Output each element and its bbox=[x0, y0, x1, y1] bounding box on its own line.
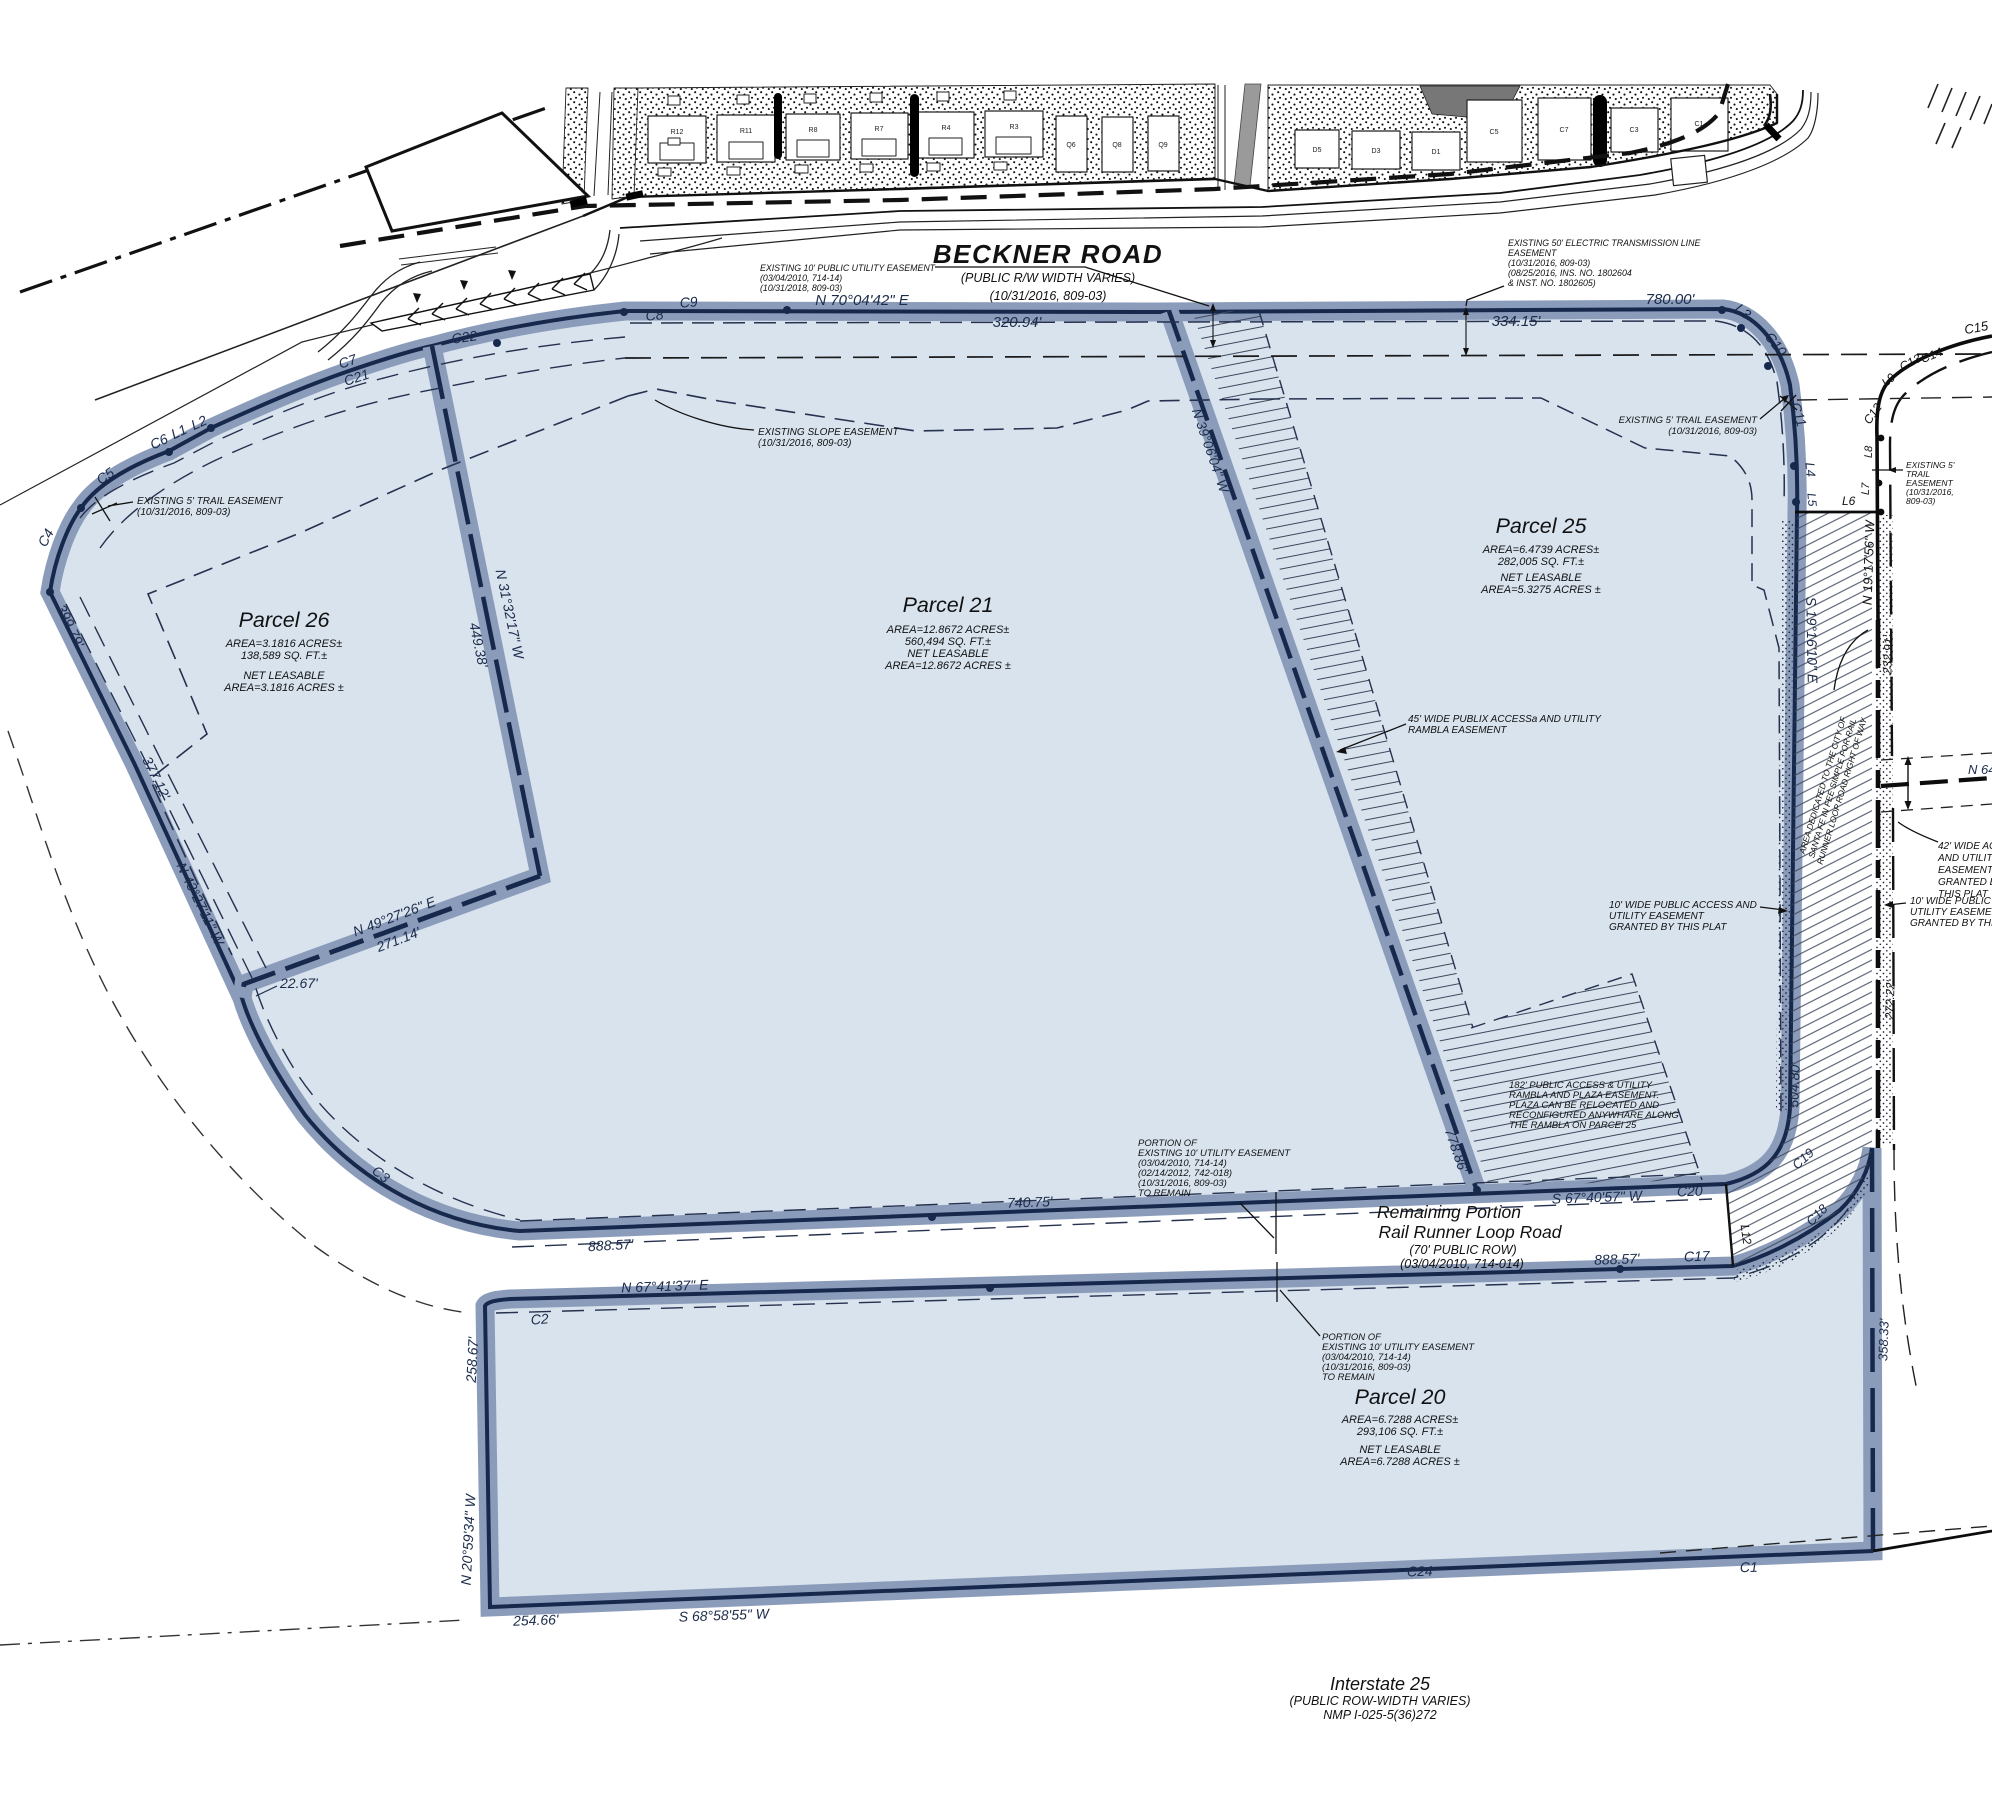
svg-text:C8: C8 bbox=[645, 306, 665, 324]
svg-text:C24: C24 bbox=[1407, 1563, 1433, 1580]
svg-text:C20: C20 bbox=[1677, 1183, 1703, 1200]
svg-text:(08/25/2016, INS. NO. 1802604: (08/25/2016, INS. NO. 1802604 bbox=[1508, 268, 1632, 278]
svg-text:L8: L8 bbox=[1863, 445, 1875, 459]
svg-text:S 68°58'55" W: S 68°58'55" W bbox=[678, 1605, 771, 1624]
svg-text:N 19°17'56" W: N 19°17'56" W bbox=[1860, 519, 1878, 606]
svg-text:AREA=6.7288 ACRES ±: AREA=6.7288 ACRES ± bbox=[1339, 1456, 1460, 1468]
svg-text:42' WIDE ACCESS: 42' WIDE ACCESS bbox=[1938, 841, 1992, 852]
svg-text:358.33': 358.33' bbox=[1875, 1318, 1891, 1361]
svg-text:EXISTING 5' TRAIL EASEMENT: EXISTING 5' TRAIL EASEMENT bbox=[1619, 415, 1759, 426]
svg-text:& INST. NO. 1802605): & INST. NO. 1802605) bbox=[1508, 278, 1596, 288]
svg-text:809-03): 809-03) bbox=[1906, 496, 1935, 506]
svg-text:Q9: Q9 bbox=[1158, 142, 1167, 149]
svg-text:C1: C1 bbox=[1740, 1559, 1758, 1576]
svg-text:RAMBLA EASEMENT: RAMBLA EASEMENT bbox=[1408, 725, 1507, 736]
svg-text:D1: D1 bbox=[1432, 149, 1441, 156]
svg-text:EXISTING 10' PUBLIC UTILITY EA: EXISTING 10' PUBLIC UTILITY EASEMENT bbox=[760, 263, 936, 273]
svg-text:EXISTING 5' TRAIL EASEMENT: EXISTING 5' TRAIL EASEMENT bbox=[137, 496, 284, 507]
svg-text:Parcel 21: Parcel 21 bbox=[903, 593, 994, 617]
svg-text:Remaining Portion: Remaining Portion bbox=[1377, 1202, 1521, 1222]
svg-text:N 67°41'37" E: N 67°41'37" E bbox=[621, 1276, 709, 1295]
svg-text:BECKNER ROAD: BECKNER ROAD bbox=[933, 239, 1163, 269]
svg-text:GRANTED BY THIS PLAT: GRANTED BY THIS PLAT bbox=[1910, 918, 1992, 929]
svg-text:AREA=6.4739 ACRES±: AREA=6.4739 ACRES± bbox=[1482, 544, 1600, 556]
svg-text:Interstate 25: Interstate 25 bbox=[1330, 1674, 1431, 1694]
svg-text:AREA=12.8672 ACRES±: AREA=12.8672 ACRES± bbox=[886, 624, 1010, 636]
svg-text:(10/31/2016, 809-03): (10/31/2016, 809-03) bbox=[990, 289, 1107, 303]
svg-text:UTILITY EASEMENT: UTILITY EASEMENT bbox=[1910, 907, 1992, 918]
svg-text:S 19°16'10" E: S 19°16'10" E bbox=[1803, 597, 1821, 684]
svg-text:293,106 SQ. FT.±: 293,106 SQ. FT.± bbox=[1356, 1426, 1443, 1438]
svg-text:L12: L12 bbox=[1738, 1224, 1755, 1246]
svg-text:22.67': 22.67' bbox=[279, 975, 319, 991]
svg-text:(PUBLIC R/W WIDTH VARIES): (PUBLIC R/W WIDTH VARIES) bbox=[961, 271, 1135, 285]
svg-text:(PUBLIC ROW-WIDTH VARIES): (PUBLIC ROW-WIDTH VARIES) bbox=[1289, 1694, 1470, 1708]
svg-text:R4: R4 bbox=[942, 125, 951, 132]
svg-text:C9: C9 bbox=[679, 293, 698, 310]
svg-text:L4: L4 bbox=[1802, 462, 1818, 478]
svg-text:D3: D3 bbox=[1372, 148, 1381, 155]
svg-text:THE RAMBLA ON PARCEl 25: THE RAMBLA ON PARCEl 25 bbox=[1509, 1120, 1637, 1131]
svg-text:NMP I-025-5(36)272: NMP I-025-5(36)272 bbox=[1323, 1708, 1437, 1722]
svg-text:45' WIDE PUBLIX ACCESSa AND UT: 45' WIDE PUBLIX ACCESSa AND UTILITY bbox=[1408, 714, 1602, 725]
svg-text:320.94': 320.94' bbox=[993, 314, 1043, 331]
svg-text:560,494 SQ. FT.±: 560,494 SQ. FT.± bbox=[905, 636, 991, 648]
svg-text:Q8: Q8 bbox=[1112, 142, 1121, 149]
svg-text:D5: D5 bbox=[1313, 147, 1322, 154]
svg-text:EXISTING 50' ELECTRIC TRANSMIS: EXISTING 50' ELECTRIC TRANSMISSION LINE bbox=[1508, 238, 1700, 248]
svg-text:R12: R12 bbox=[671, 129, 684, 136]
svg-text:GRANTED BY: GRANTED BY bbox=[1938, 877, 1992, 888]
svg-text:C7: C7 bbox=[1560, 127, 1569, 134]
svg-text:272.22': 272.22' bbox=[1882, 979, 1897, 1020]
svg-text:EXISTING SLOPE EASEMENT: EXISTING SLOPE EASEMENT bbox=[758, 427, 899, 438]
svg-text:Q6: Q6 bbox=[1066, 142, 1075, 149]
svg-text:L5: L5 bbox=[1804, 492, 1819, 507]
svg-text:NET LEASABLE: NET LEASABLE bbox=[1359, 1444, 1441, 1456]
svg-text:NET LEASABLE: NET LEASABLE bbox=[243, 670, 325, 682]
svg-text:Parcel 26: Parcel 26 bbox=[239, 608, 330, 632]
svg-text:R8: R8 bbox=[809, 127, 818, 134]
svg-text:AREA=6.7288 ACRES±: AREA=6.7288 ACRES± bbox=[1341, 1414, 1459, 1426]
svg-text:R11: R11 bbox=[740, 128, 752, 135]
svg-text:740.75': 740.75' bbox=[1007, 1193, 1054, 1211]
svg-text:EASEMENT: EASEMENT bbox=[1938, 865, 1992, 876]
svg-text:L7: L7 bbox=[1860, 482, 1872, 496]
svg-text:C17: C17 bbox=[1684, 1248, 1711, 1265]
svg-text:NET LEASABLE: NET LEASABLE bbox=[1500, 572, 1582, 584]
svg-text:N 64: N 64 bbox=[1968, 762, 1992, 777]
svg-text:TO REMAIN: TO REMAIN bbox=[1322, 1372, 1375, 1383]
svg-text:R7: R7 bbox=[875, 126, 884, 133]
svg-text:UTILITY EASEMENT: UTILITY EASEMENT bbox=[1609, 911, 1705, 922]
svg-text:AREA=5.3275 ACRES ±: AREA=5.3275 ACRES ± bbox=[1480, 584, 1601, 596]
svg-text:(70' PUBLIC ROW): (70' PUBLIC ROW) bbox=[1409, 1243, 1516, 1257]
svg-text:C5: C5 bbox=[1490, 129, 1499, 136]
svg-text:L6: L6 bbox=[1842, 494, 1856, 508]
svg-text:C3: C3 bbox=[1630, 127, 1639, 134]
svg-text:AND UTILITY: AND UTILITY bbox=[1937, 853, 1992, 864]
svg-text:(10/31/2016, 809-03): (10/31/2016, 809-03) bbox=[758, 438, 851, 449]
svg-text:TO REMAIN: TO REMAIN bbox=[1138, 1188, 1191, 1199]
svg-text:(10/31/2016, 809-03): (10/31/2016, 809-03) bbox=[1668, 426, 1757, 437]
svg-text:(03/04/2010, 714-14): (03/04/2010, 714-14) bbox=[760, 273, 842, 283]
svg-text:GRANTED BY THIS PLAT: GRANTED BY THIS PLAT bbox=[1609, 922, 1727, 933]
svg-text:Rail Runner Loop Road: Rail Runner Loop Road bbox=[1379, 1222, 1563, 1242]
svg-text:C2: C2 bbox=[530, 1310, 549, 1327]
svg-text:AREA=3.1816 ACRES±: AREA=3.1816 ACRES± bbox=[225, 638, 343, 650]
svg-text:780.00': 780.00' bbox=[1646, 291, 1696, 308]
svg-text:S 67°40'57" W: S 67°40'57" W bbox=[1551, 1187, 1644, 1206]
svg-text:138,589 SQ. FT.±: 138,589 SQ. FT.± bbox=[241, 650, 327, 662]
svg-text:(03/04/2010, 714-014): (03/04/2010, 714-014) bbox=[1400, 1257, 1524, 1271]
svg-text:258.67': 258.67' bbox=[463, 1335, 481, 1384]
svg-text:AREA=3.1816 ACRES ±: AREA=3.1816 ACRES ± bbox=[223, 682, 344, 694]
svg-text:888.57': 888.57' bbox=[588, 1236, 636, 1254]
svg-text:THIS PLAT: THIS PLAT bbox=[1938, 889, 1989, 900]
svg-text:888.57': 888.57' bbox=[1594, 1250, 1641, 1268]
svg-text:254.66': 254.66' bbox=[512, 1611, 560, 1629]
svg-text:NET LEASABLE: NET LEASABLE bbox=[907, 648, 989, 660]
svg-text:282,005 SQ. FT.±: 282,005 SQ. FT.± bbox=[1497, 556, 1584, 568]
svg-text:Parcel 20: Parcel 20 bbox=[1355, 1385, 1446, 1409]
svg-text:R3: R3 bbox=[1010, 124, 1019, 131]
svg-text:334.15': 334.15' bbox=[1492, 313, 1542, 330]
svg-text:10' WIDE PUBLIC ACCESS AND: 10' WIDE PUBLIC ACCESS AND bbox=[1609, 900, 1757, 911]
svg-text:EASEMENT: EASEMENT bbox=[1508, 248, 1557, 258]
svg-text:Parcel 25: Parcel 25 bbox=[1496, 514, 1588, 538]
svg-text:504.80': 504.80' bbox=[1785, 1060, 1803, 1107]
svg-text:232.91': 232.91' bbox=[1880, 634, 1895, 675]
svg-text:(10/31/2016, 809-03): (10/31/2016, 809-03) bbox=[137, 507, 230, 518]
svg-text:AREA=12.8672 ACRES ±: AREA=12.8672 ACRES ± bbox=[884, 660, 1011, 672]
svg-text:N 70°04'42" E: N 70°04'42" E bbox=[815, 292, 909, 309]
svg-text:(10/31/2016, 809-03): (10/31/2016, 809-03) bbox=[1508, 258, 1590, 268]
